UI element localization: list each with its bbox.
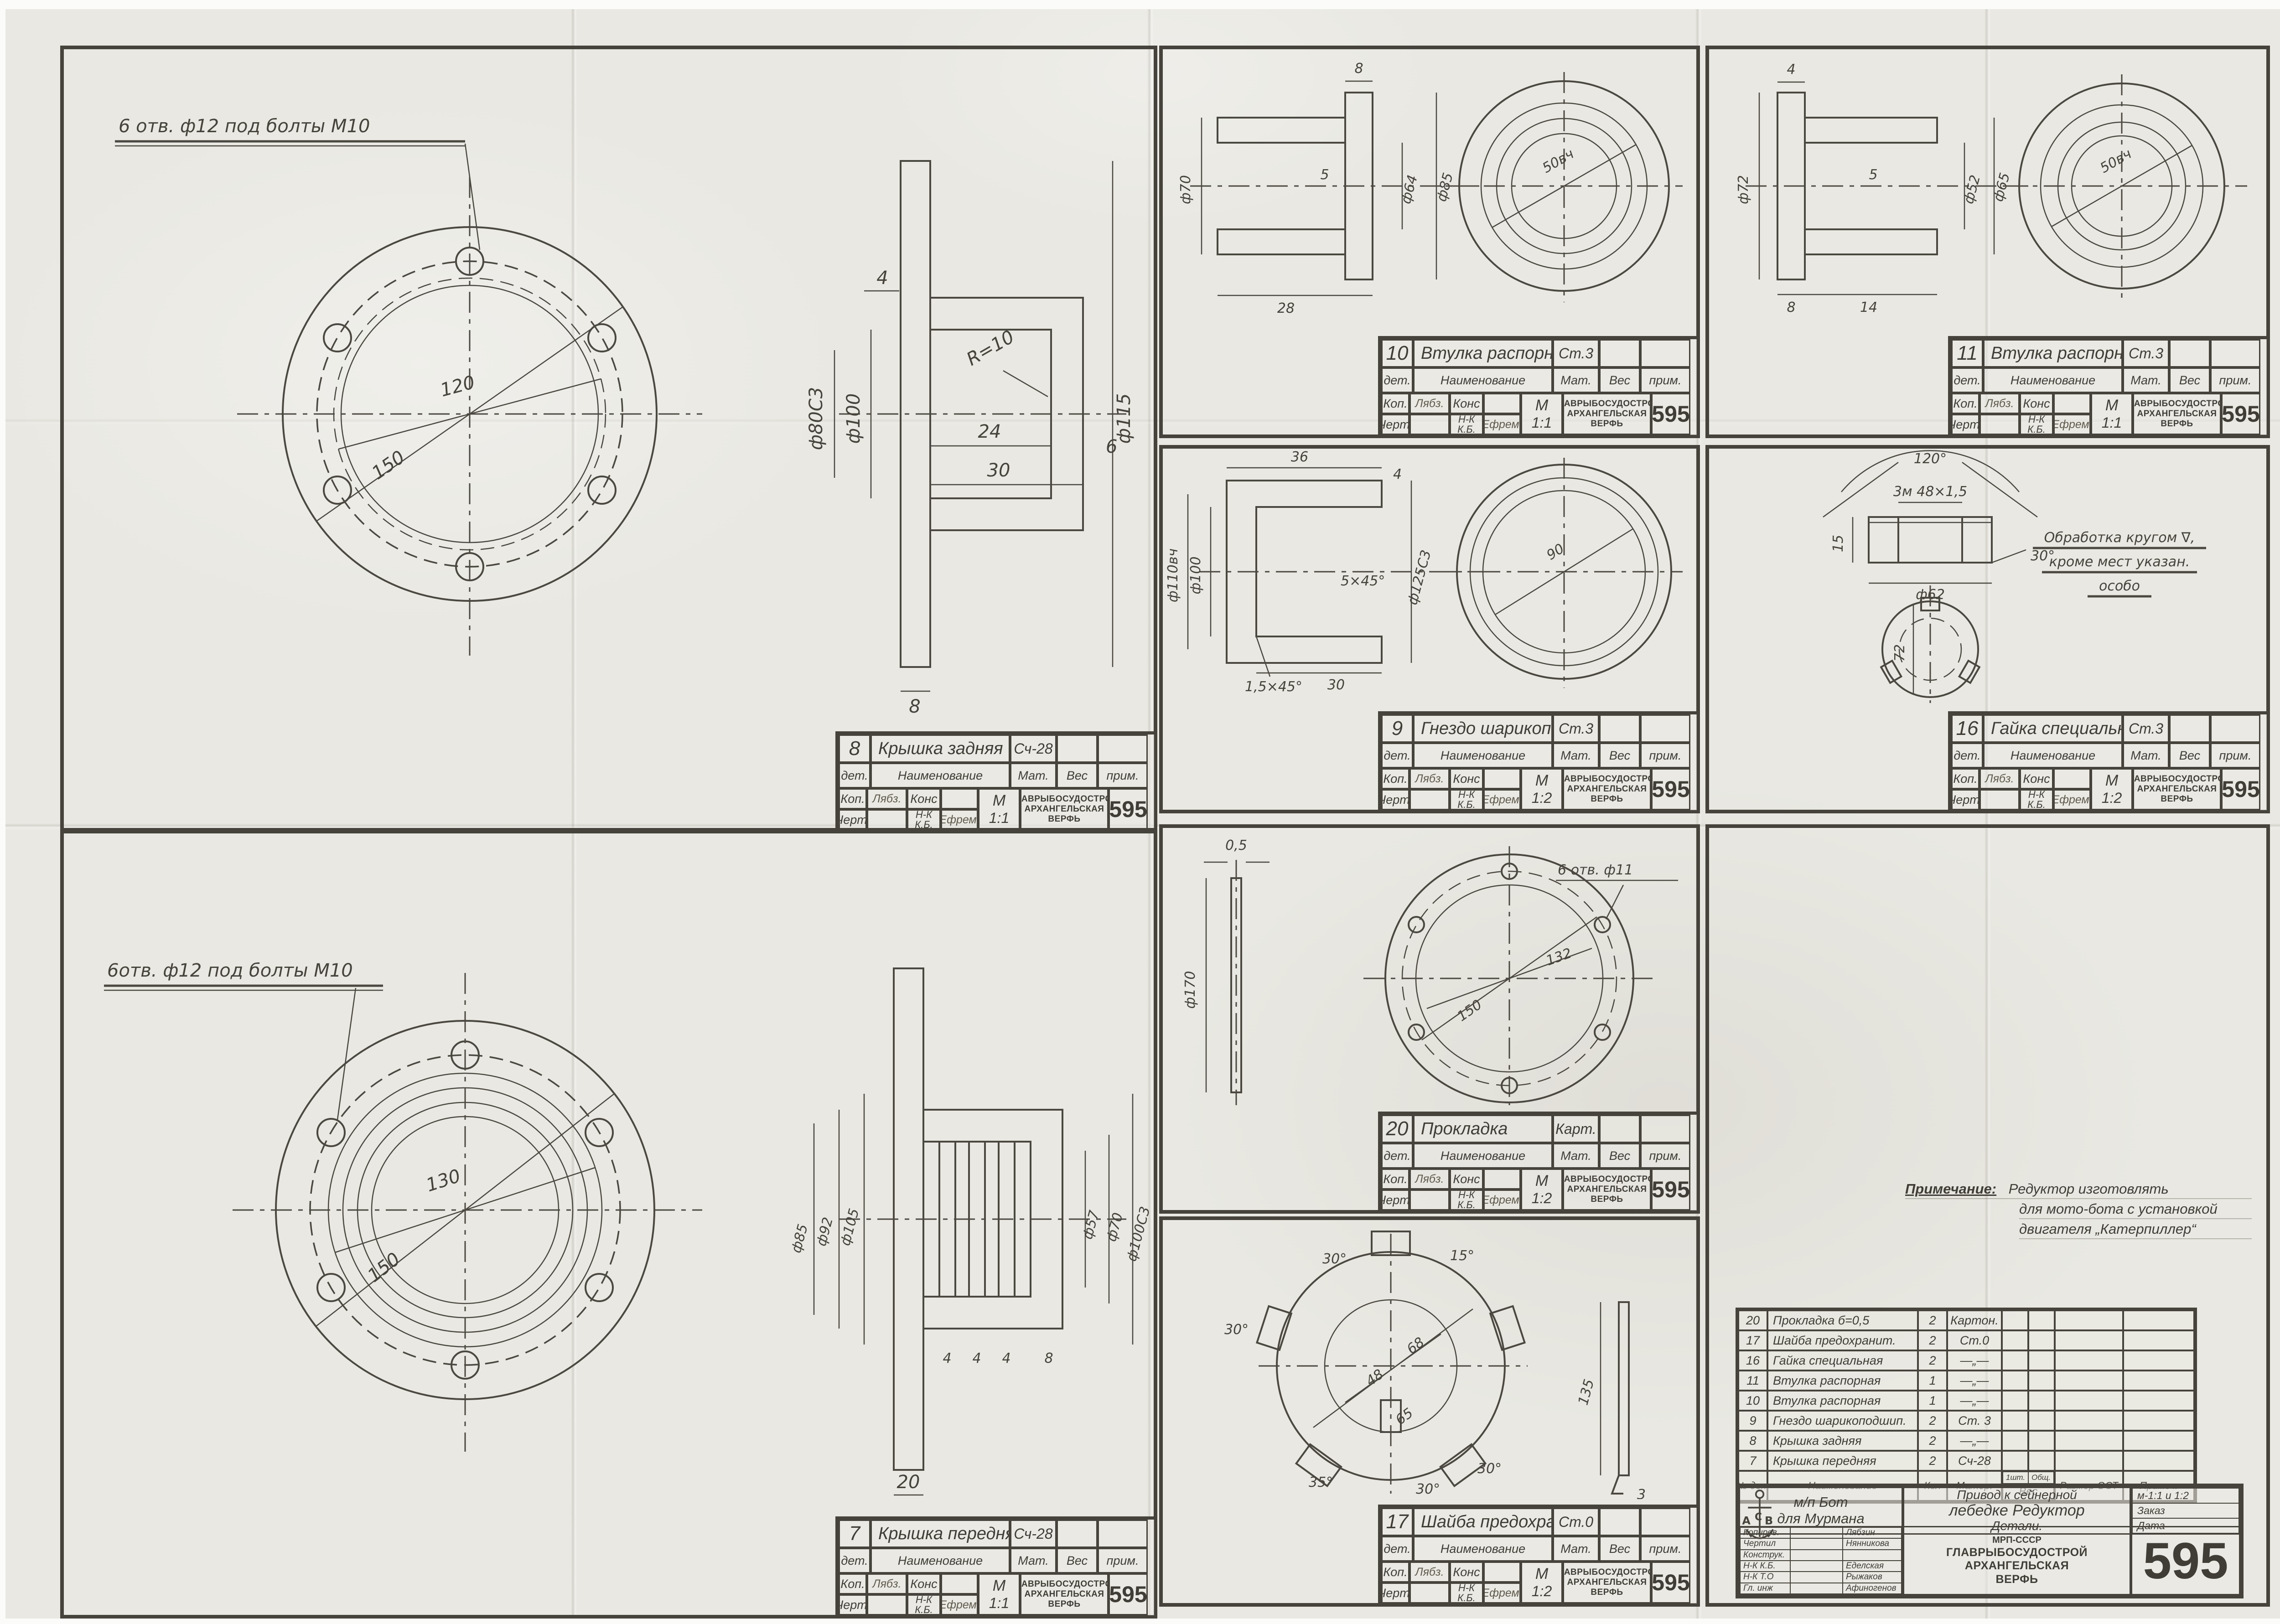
scale-label: М [993,1577,1005,1595]
dim-label: ф72 [1736,175,1751,204]
part-row-ves1 [2002,1310,2028,1330]
label-kons: Конс [1450,768,1483,789]
empty-cell [1057,1520,1098,1548]
empty-cell [1098,734,1148,763]
part-row-num: 9 [1738,1411,1767,1431]
signature-kop: Лябз. [1979,393,2020,414]
part-material: Ст.0 [1553,1508,1599,1536]
label-det: дет. [1951,367,1983,393]
empty-cell [2053,768,2091,789]
signature-cher [1409,789,1450,810]
part-row-num: 16 [1738,1350,1767,1371]
part-number: 8 [839,734,871,763]
drawing-p16: 120° 3м 48×1,5 15 ф62 30° 72 [1709,449,2260,704]
signature-cher [1409,1583,1450,1603]
part-row-size [2055,1391,2123,1411]
part-row-mat: —„— [1947,1391,2002,1411]
machining-note: Обработка кругом ∇, кроме мест указан. о… [2033,530,2206,596]
part-row-num: 11 [1738,1371,1767,1391]
label-prim: прим. [2210,367,2260,393]
part-row-size [2055,1371,2123,1391]
dim-label: R=10 [963,326,1018,370]
label-mat: Мат. [2123,367,2169,393]
dim-label: 4 [972,1350,981,1366]
part-row-ves1 [2002,1431,2028,1451]
dim-label: ф125С3 [1404,548,1435,607]
note-text: 6 отв. ф12 под болты М10 [119,116,370,137]
part-row-mat: —„— [1947,1371,2002,1391]
label-naimenovanie: Наименование [1983,367,2123,393]
titleblock-bottom: Коп.Лябз.КонсМ1:2ГЛАВРЫБОСУДОСТРОЙАРХАНГ… [1381,1562,1697,1603]
org-yard: ВЕРФЬ [1946,1573,2088,1587]
dim-label: 4 [1393,466,1402,482]
titleblock-top: 10Втулка распорнаяСт.3дет.НаименованиеМа… [1381,339,1697,393]
label-prim: прим. [1640,1143,1690,1169]
empty-cell [1640,1115,1690,1143]
titleblock-top: 11Втулка распорнаяСт.3дет.НаименованиеМа… [1951,339,2267,393]
part-number: 16 [1951,714,1983,743]
panel-p9: 36 4 ф100 ф110вч ф125С3 5×45° 1,5×45° 30 [1159,445,1700,813]
drawing-number: 595 [1651,768,1690,810]
note-line: кроме мест указан. [2049,554,2190,570]
part-row-qty: 2 [1918,1451,1947,1471]
label-prim: прим. [2210,743,2260,768]
dim-label: 30° [1322,1251,1347,1267]
signature-kop: Лябз. [1409,393,1450,414]
scale-value: 1:2 [1532,1583,1552,1600]
part-title: Гайка специальн. [1983,714,2123,743]
scale-value: 1:2 [1532,1190,1552,1207]
org-main: ГЛАВРЫБОСУДОСТРОЙ [1563,399,1651,409]
role-name: Рыжаков [1843,1572,1902,1583]
org-yard: ВЕРФЬ [2161,419,2193,429]
label-nk: Н-К К.Б. [2020,789,2053,810]
scale-label: М [1535,397,1548,414]
part-row-note [2123,1411,2194,1431]
label-det: дет. [1951,743,1983,768]
titleblock-bottom: Коп.Лябз.КонсМ1:2ГЛАВРЫБОСУДОСТРОЙАРХАНГ… [1381,1169,1697,1210]
label-prim: прим. [1640,743,1690,768]
note-line: Редуктор изготовлять [2009,1181,2169,1197]
label-det: дет. [839,1548,871,1573]
part-row-ves2 [2028,1350,2055,1371]
label-mat: Мат. [1553,367,1599,393]
scale-cell: М1:1 [2091,393,2133,435]
part-row-note [2123,1350,2194,1371]
dim-label: ф92 [814,1215,836,1248]
role-label: Н-К К.Б. [1740,1561,1790,1572]
dim-label: 72 [1892,644,1908,662]
label-kons: Конс [907,788,941,809]
titleblock-p8: 8Крышка задняяСч-28дет.НаименованиеМат.В… [835,731,1157,833]
part-title: Крышка задняя [871,734,1010,763]
drawing-number: 595 [2221,393,2260,435]
panel-p8: 120 150 6 отв. ф12 под болты М10 ф100 ф8… [60,46,1157,833]
label-kons: Конс [1450,1562,1483,1583]
label-naimenovanie: Наименование [871,1548,1010,1573]
dim-label: 0,5 [1225,838,1247,853]
signature-nk: Ефрем. [1483,789,1521,810]
dim-label: 30° [1224,1322,1249,1338]
scale-cell: М1:1 [978,788,1020,830]
part-title: Прокладка [1413,1115,1553,1143]
part-row-note [2123,1391,2194,1411]
dim-label: 8 [1044,1350,1053,1366]
label-cher: Черт. [1381,414,1409,435]
org-yard: ВЕРФЬ [2161,794,2193,804]
part-row-num: 8 [1738,1431,1767,1451]
scale-cell: М1:1 [1521,393,1563,435]
note-line: для мото-бота с установкой [2019,1201,2218,1217]
label-naimenovanie: Наименование [1413,1536,1553,1562]
dim-label: 4 [1787,62,1795,78]
titleblock-bottom: Коп.Лябз.КонсМ1:2ГЛАВРЫБОСУДОСТРОЙАРХАНГ… [1381,768,1697,810]
scale-value: 1:1 [1532,414,1552,431]
dim-label: 120 [438,372,477,401]
titleblock-top: 17Шайба предохранит.Ст.0дет.Наименование… [1381,1508,1697,1562]
dim-label: 135 [1575,1377,1598,1407]
label-cher: Черт. [839,809,867,830]
part-row-num: 10 [1738,1391,1767,1411]
org-cell: ГЛАВРЫБОСУДОСТРОЙАРХАНГЕЛЬСКАЯВЕРФЬ [2133,393,2221,435]
org-cell: ГЛАВРЫБОСУДОСТРОЙАРХАНГЕЛЬСКАЯВЕРФЬ [1563,1562,1651,1603]
empty-cell [2210,714,2260,743]
dim-label: 5 [1320,167,1329,183]
label-kop: Коп. [1951,393,1979,414]
org-city: АРХАНГЕЛЬСКАЯ [1025,1589,1104,1599]
label-cher: Черт. [1381,1583,1409,1603]
part-row-ves2 [2028,1431,2055,1451]
part-row-qty: 1 [1918,1371,1947,1391]
scale-value: 1:1 [989,1595,1009,1612]
drawing-p10: 8 5 ф70 ф64 ф85 28 50вч [1163,49,1690,323]
panel-p20: 0,5 ф170 150 132 6 отв. ф11 [1159,824,1700,1214]
role-signature [1790,1572,1843,1583]
part-row-ves2 [2028,1391,2055,1411]
part-material: Ст.3 [1553,714,1599,743]
dim-label: 130 [424,1165,463,1196]
label-kons: Конс [2020,393,2053,414]
main-title-block: м/п Бот для Мурмана Привод к сейнерной л… [1736,1484,2244,1598]
scale-label: М [2105,397,2118,414]
part-row-ves2 [2028,1330,2055,1350]
assembly-line: Привод к сейнерной [1904,1488,2130,1502]
order-label: Заказ [2132,1503,2239,1518]
label-prim: прим. [1640,1536,1690,1562]
part-row-mat: Ст.0 [1947,1330,2002,1350]
part-row-note [2123,1451,2194,1471]
org-main: ГЛАВРЫБОСУДОСТРОЙ [2133,399,2221,409]
dim-label: 68 [1404,1334,1428,1357]
title-row-bottom: Копиров.ЛябзинЧертилНянниковаКонструк.Н-… [1739,1526,2240,1595]
part-row-num: 17 [1738,1330,1767,1350]
drawing-p17: 30° 15° 30° 68 48 65 35° 30° 30° 135 3 [1163,1220,1690,1499]
parts-list-table: 20Прокладка б=0,52Картон.17Шайба предохр… [1736,1308,2197,1504]
titleblock-p11: 11Втулка распорнаяСт.3дет.НаименованиеМа… [1948,336,2270,438]
part-row-note [2123,1330,2194,1350]
titleblock-p10: 10Втулка распорнаяСт.3дет.НаименованиеМа… [1378,336,1700,438]
label-nk: Н-К К.Б. [1450,414,1483,435]
dim-label: 30 [987,460,1010,481]
empty-cell [2210,339,2260,367]
dim-label: ф70 [1104,1211,1126,1243]
drawing-p11: 4 5 ф72 ф52 ф65 8 14 5 [1709,49,2260,323]
part-row-note [2123,1310,2194,1330]
empty-cell [1483,1562,1521,1583]
label-ves: Вес [1599,1536,1640,1562]
part-number: 17 [1381,1508,1413,1536]
label-kop: Коп. [1951,768,1979,789]
part-row-name: Гнездо шарикоподшип. [1767,1411,1918,1431]
role-row: Н-К К.Б.Еделская [1740,1561,1902,1572]
empty-cell [1057,734,1098,763]
signature-kop: Лябз. [1409,768,1450,789]
label-mat: Мат. [1553,743,1599,768]
part-row-qty: 2 [1918,1330,1947,1350]
signature-nk: Ефрем. [1483,1190,1521,1210]
part-row-name: Крышка передняя [1767,1451,1918,1471]
parts-header-ves2: Общ. [2028,1472,2054,1484]
panel-p10: 8 5 ф70 ф64 ф85 28 50вч [1159,46,1700,438]
label-naimenovanie: Наименование [1413,367,1553,393]
note-row: для мото-бота с установкой [2019,1199,2252,1219]
scale-label: М [993,792,1005,810]
scale-label: М [2105,772,2118,790]
signature-kop: Лябз. [867,1573,907,1594]
front-view: 120 150 [237,177,702,656]
signature-nk: Ефрем. [1483,1583,1521,1603]
label-cher: Черт. [1381,1190,1409,1210]
scale-cell: М1:2 [1521,1169,1563,1210]
role-signature [1790,1561,1843,1572]
empty-cell [1098,1520,1148,1548]
label-nk: Н-К К.Б. [907,809,941,830]
org-main: ГЛАВРЫБОСУДОСТРОЙ [1946,1546,2088,1560]
org-cell: ГЛАВРЫБОСУДОСТРОЙАРХАНГЕЛЬСКАЯВЕРФЬ [1563,768,1651,810]
hole-callout: 6отв. ф12 под болты М10 [104,960,383,1120]
part-row-ves1 [2002,1411,2028,1431]
part-row-mat: Ст. 3 [1947,1411,2002,1431]
role-signature [1790,1550,1843,1561]
label-kop: Коп. [1381,768,1409,789]
label-ves: Вес [1057,763,1098,788]
part-row-mat: —„— [1947,1350,2002,1371]
part-row-ves1 [2002,1391,2028,1411]
label-mat: Мат. [1010,1548,1057,1573]
label-det: дет. [1381,1143,1413,1169]
part-material: Карт. [1553,1115,1599,1143]
org-city: АРХАНГЕЛЬСКАЯ [1567,784,1647,794]
signature-nk: Ефрем. [1483,414,1521,435]
titleblock-p7: 7Крышка передняяСч-28дет.НаименованиеМат… [835,1516,1157,1619]
drawing-p9: 36 4 ф100 ф110вч ф125С3 5×45° 1,5×45° 30 [1163,449,1690,704]
label-nk: Н-К К.Б. [907,1594,941,1615]
label-prim: прим. [1098,763,1148,788]
role-label: Конструк. [1740,1550,1790,1561]
organization-cell: А В С МРП-СССР ГЛАВРЫБОСУДОСТРОЙ АРХАНГЕ… [1903,1526,2131,1595]
note-row: Примечание: Редуктор изготовлять [1905,1179,2252,1199]
part-title: Гнездо шарикоподш. [1413,714,1553,743]
dim-label: 30° [1416,1481,1440,1497]
dim-label: 30 [1327,677,1345,693]
drawing-p20: 0,5 ф170 150 132 6 отв. ф11 [1163,828,1690,1106]
front-view: 90 [1441,458,1683,688]
part-row-ves2 [2028,1310,2055,1330]
part-row-ves2 [2028,1371,2055,1391]
panel-p11: 4 5 ф72 ф52 ф65 8 14 5 [1705,46,2270,438]
scale-label: М [1535,1172,1548,1190]
part-row-note [2123,1431,2194,1451]
label-det: дет. [1381,367,1413,393]
dim-label: ф57 [1080,1209,1103,1241]
nut-section-view: 120° 3м 48×1,5 15 ф62 30° [1823,450,2055,603]
role-row: Гл. инжАфиногенов [1740,1583,1902,1594]
scale-value: 1:1 [989,810,1009,827]
org-yard: ВЕРФЬ [1048,1599,1080,1609]
part-row-size [2055,1330,2123,1350]
note-line: двигателя „Катерпиллер“ [2019,1221,2196,1237]
part-row-qty: 2 [1918,1310,1947,1330]
note-label: Примечание: [1905,1181,1996,1197]
label-kop: Коп. [839,1573,867,1594]
role-label: Гл. инж [1740,1583,1790,1594]
part-number: 9 [1381,714,1413,743]
dim-label: ф100 [1188,557,1204,595]
dim-label: 4 [876,268,888,289]
label-mat: Мат. [1553,1143,1599,1169]
label-mat: Мат. [2123,743,2169,768]
titleblock-bottom: Коп.Лябз.КонсМ1:1ГЛАВРЫБОСУДОСТРОЙАРХАНГ… [1381,393,1697,435]
dim-label: 5×45° [1341,573,1385,589]
part-row-ves1 [2002,1451,2028,1471]
part-row-note [2123,1371,2194,1391]
dim-label: 4 [1002,1350,1010,1366]
dim-label: ф70 [1178,175,1194,204]
dim-label: 50вч [2098,146,2135,176]
washer-side-view: 135 3 [1575,1302,1646,1499]
drawing-number: 595 [1651,393,1690,435]
title-row-top: м/п Бот для Мурмана Привод к сейнерной л… [1739,1487,2240,1526]
label-kop: Коп. [1381,1169,1409,1190]
label-mat: Мат. [1010,763,1057,788]
dim-label: ф85 [788,1222,811,1255]
note-text: 6отв. ф12 под болты М10 [107,960,353,981]
dim-label: 30° [1477,1461,1502,1477]
empty-cell [2169,339,2210,367]
org-main: ГЛАВРЫБОСУДОСТРОЙ [1020,794,1109,804]
scale-value: м-1:1 и 1:2 [2132,1488,2239,1503]
titleblock-p9: 9Гнездо шарикоподш.Ст.3дет.НаименованиеМ… [1378,711,1700,813]
part-row-size [2055,1411,2123,1431]
titleblock-top: 7Крышка передняяСч-28дет.НаименованиеМат… [839,1520,1154,1573]
dim-label: 6 [1106,436,1117,457]
role-name: Еделская [1843,1561,1902,1572]
drawing-number: 595 [2221,768,2260,810]
part-number: 10 [1381,339,1413,367]
front-view: 50вч [2005,74,2247,300]
scale-cell: М1:2 [1521,768,1563,810]
scale-value: 1:2 [1532,790,1552,807]
part-row-size [2055,1310,2123,1330]
signature-kop: Лябз. [1409,1562,1450,1583]
signature-kop: Лябз. [1409,1169,1450,1190]
label-ves: Вес [1599,1143,1640,1169]
org-city: АРХАНГЕЛЬСКАЯ [1025,804,1104,814]
part-row-mat: Сч-28 [1947,1451,2002,1471]
org-main: ГЛАВРЫБОСУДОСТРОЙ [1020,1579,1109,1589]
titleblock-p16: 16Гайка специальн.Ст.3дет.НаименованиеМа… [1948,711,2270,813]
part-title: Втулка распорная [1983,339,2123,367]
role-label: Н-К Т.О [1740,1572,1790,1583]
dim-label: 65 [1393,1405,1416,1428]
part-row-name: Крышка задняя [1767,1431,1918,1451]
label-ves: Вес [1599,367,1640,393]
empty-cell [1483,1169,1521,1190]
part-material: Сч-28 [1010,1520,1057,1548]
panel-p17: 30° 15° 30° 68 48 65 35° 30° 30° 135 3 1… [1159,1216,1700,1607]
dim-label: ф64 [1398,173,1421,206]
section-view: ф100 ф80С3 ф115 24 30 6 4 8 R=10 [806,161,1135,717]
signature-cher [1979,789,2020,810]
org-ministry: МРП-СССР [1946,1535,2088,1546]
panel-p16: 120° 3м 48×1,5 15 ф62 30° 72 [1705,445,2270,813]
label-naimenovanie: Наименование [1413,1143,1553,1169]
svg-text:А: А [1742,1515,1751,1527]
org-cell: ГЛАВРЫБОСУДОСТРОЙАРХАНГЕЛЬСКАЯВЕРФЬ [2133,768,2221,810]
titleblock-bottom: Коп.Лябз.КонсМ1:2ГЛАВРЫБОСУДОСТРОЙАРХАНГ… [1951,768,2267,810]
label-cher: Черт. [1951,789,1979,810]
part-number: 7 [839,1520,871,1548]
panel-main: Примечание: Редуктор изготовлять для мот… [1705,824,2270,1607]
label-cher: Черт. [1951,414,1979,435]
dim-label: ф170 [1182,971,1198,1009]
washer-front-view: 30° 15° 30° 68 48 65 35° 30° 30° [1224,1231,1528,1497]
scale-value: 1:2 [2102,790,2122,807]
part-row-size [2055,1431,2123,1451]
org-main: ГЛАВРЫБОСУДОСТРОЙ [2133,774,2221,784]
org-city: АРХАНГЕЛЬСКАЯ [1946,1559,2088,1573]
org-city: АРХАНГЕЛЬСКАЯ [1567,409,1647,419]
empty-cell [1640,339,1690,367]
section-view: ф105 ф92 ф85 ф57 ф70 ф100С3 4 4 4 8 20 [788,968,1154,1495]
org-main: ГЛАВРЫБОСУДОСТРОЙ [1563,774,1651,784]
org-yard: ВЕРФЬ [1048,814,1080,824]
dim-label: 150 [364,1249,404,1287]
dim-label: ф80С3 [806,387,827,450]
label-prim: прим. [1098,1548,1148,1573]
note-line: особо [2099,578,2140,594]
empty-cell [1640,714,1690,743]
front-view: 150 132 6 отв. ф11 [1363,846,1678,1105]
signature-cher [1409,414,1450,435]
dim-label: 20 [897,1472,920,1493]
part-material: Сч-28 [1010,734,1057,763]
part-row-ves2 [2028,1411,2055,1431]
section-view: 4 5 ф72 ф52 ф65 8 14 [1736,62,2028,315]
dim-label: ф110вч [1165,548,1181,602]
part-row-name: Гайка специальная [1767,1350,1918,1371]
part-row-name: Прокладка б=0,5 [1767,1310,1918,1330]
empty-cell [1640,1508,1690,1536]
titleblock-bottom: Коп.Лябз.КонсМ1:1ГЛАВРЫБОСУДОСТРОЙАРХАНГ… [1951,393,2267,435]
empty-cell [1599,714,1640,743]
label-ves: Вес [1057,1548,1098,1573]
role-name: Афиногенов [1843,1583,1902,1594]
drawing-p8: 120 150 6 отв. ф12 под болты М10 ф100 ф8… [64,49,1154,724]
dim-label: 24 [978,421,1001,442]
part-row-ves1 [2002,1330,2028,1350]
front-view: 130 150 [233,973,702,1452]
